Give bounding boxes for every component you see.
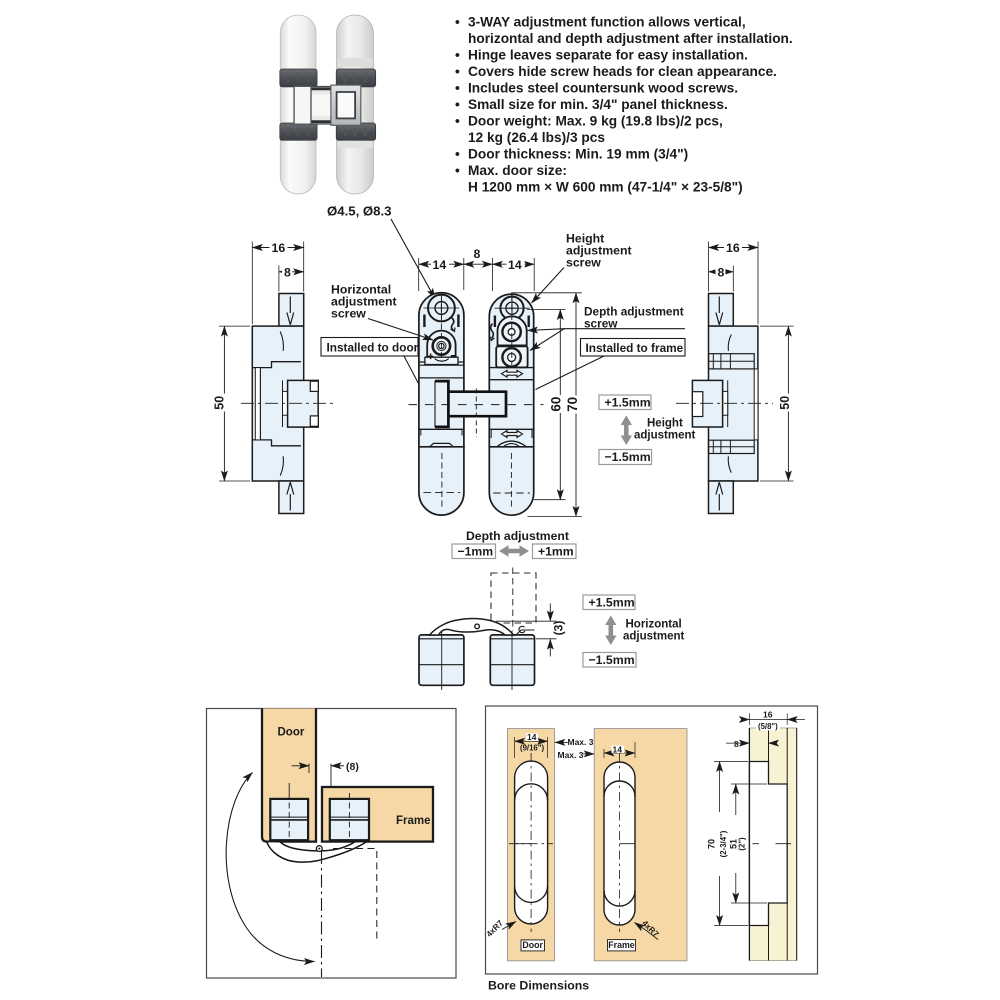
svg-text:8: 8 [718, 266, 725, 280]
svg-text:(9/16"): (9/16") [520, 744, 544, 753]
svg-text:Door weight: Max. 9 kg (19.8 l: Door weight: Max. 9 kg (19.8 lbs)/2 pcs, [468, 114, 723, 129]
svg-text:Hinge leaves separate for easy: Hinge leaves separate for easy installat… [468, 48, 748, 63]
svg-text:•: • [455, 48, 460, 63]
svg-text:Horizontal: Horizontal [626, 618, 682, 630]
svg-text:Door thickness: Min. 19 mm (3/: Door thickness: Min. 19 mm (3/4") [468, 147, 688, 162]
svg-text:H 1200 mm × W 600 mm (47-1/4": H 1200 mm × W 600 mm (47-1/4" × 23-5/8") [468, 180, 743, 195]
svg-text:+1mm: +1mm [538, 544, 574, 558]
svg-text:Ø4.5, Ø8.3: Ø4.5, Ø8.3 [327, 204, 392, 219]
svg-text:Door: Door [522, 940, 543, 950]
svg-text:70: 70 [565, 397, 580, 412]
svg-text:4xR7: 4xR7 [485, 918, 506, 939]
svg-text:•: • [455, 163, 460, 178]
svg-text:Covers hide screw heads for cl: Covers hide screw heads for clean appear… [468, 64, 777, 79]
svg-text:16: 16 [763, 710, 773, 720]
svg-text:(2"): (2") [738, 837, 747, 851]
svg-text:Bore Dimensions: Bore Dimensions [488, 979, 589, 993]
svg-text:8: 8 [474, 247, 481, 261]
svg-text:(8): (8) [346, 761, 359, 773]
svg-text:70: 70 [707, 839, 717, 849]
svg-text:adjustment: adjustment [623, 630, 685, 642]
svg-text:Includes steel countersunk woo: Includes steel countersunk wood screws. [468, 81, 738, 96]
svg-text:+1.5mm: +1.5mm [589, 595, 635, 609]
svg-text:16: 16 [272, 241, 286, 255]
svg-text:14: 14 [527, 732, 537, 742]
svg-text:horizontal and depth adjustmen: horizontal and depth adjustment after in… [468, 31, 793, 46]
svg-text:+1.5mm: +1.5mm [605, 395, 651, 409]
svg-text:Frame: Frame [396, 815, 431, 827]
svg-text:Door: Door [278, 727, 305, 739]
svg-text:−1mm: −1mm [458, 544, 494, 558]
svg-text:Installed to door: Installed to door [327, 341, 419, 355]
svg-text:8: 8 [284, 266, 291, 280]
svg-text:16: 16 [726, 241, 740, 255]
svg-text:Small size for min. 3/4" panel: Small size for min. 3/4" panel thickness… [468, 97, 728, 112]
svg-text:•: • [455, 15, 460, 30]
svg-text:•: • [455, 97, 460, 112]
svg-text:•: • [455, 81, 460, 96]
svg-text:−1.5mm: −1.5mm [589, 653, 635, 667]
svg-text:adjustment: adjustment [634, 429, 696, 441]
svg-text:•: • [455, 114, 460, 129]
svg-text:screw: screw [566, 256, 601, 270]
svg-text:(5/8"): (5/8") [758, 722, 778, 731]
svg-text:Height: Height [647, 417, 683, 429]
svg-text:screw: screw [331, 307, 366, 321]
svg-text:Frame: Frame [608, 940, 635, 950]
svg-text:Max. door size:: Max. door size: [468, 163, 567, 178]
svg-text:60: 60 [549, 397, 564, 412]
svg-text:8: 8 [734, 739, 739, 749]
svg-text:•: • [455, 147, 460, 162]
svg-text:•: • [455, 64, 460, 79]
svg-text:12 kg (26.4 lbs)/3 pcs: 12 kg (26.4 lbs)/3 pcs [468, 130, 605, 145]
svg-text:3-WAY adjustment function allo: 3-WAY adjustment function allows vertica… [468, 15, 746, 30]
svg-text:Max. 3: Max. 3 [558, 750, 584, 760]
svg-text:(2-3/4"): (2-3/4") [719, 830, 728, 857]
svg-text:14: 14 [433, 258, 447, 272]
svg-text:50: 50 [778, 396, 792, 410]
svg-text:14: 14 [508, 258, 522, 272]
svg-text:Depth adjustment: Depth adjustment [466, 529, 569, 543]
svg-text:14: 14 [613, 745, 623, 755]
svg-text:Max. 3: Max. 3 [568, 737, 594, 747]
svg-text:50: 50 [213, 396, 227, 410]
svg-text:(3): (3) [552, 621, 566, 636]
svg-text:−1.5mm: −1.5mm [605, 450, 651, 464]
svg-text:Installed to frame: Installed to frame [586, 341, 684, 355]
